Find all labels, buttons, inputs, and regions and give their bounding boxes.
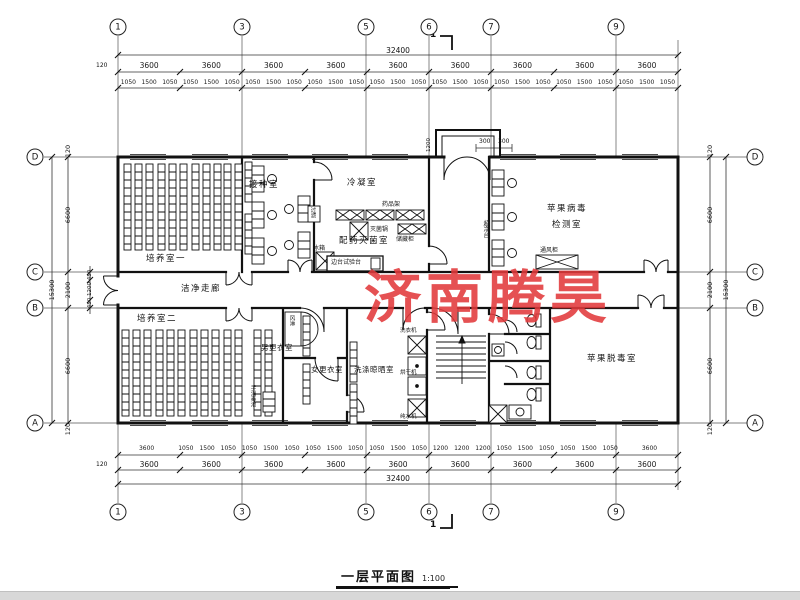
drawing-title-text: 一层平面图	[341, 566, 416, 585]
watermark-text: 济南腾昊	[364, 252, 612, 334]
grid-bubble-right-B: B	[747, 300, 764, 317]
grid-bubble-top-7: 7	[483, 19, 500, 36]
title-underline	[336, 586, 458, 588]
floor-plan-canvas: 济南腾昊 1 3 5 6 7 9 1 3 5 6 7 9 D C B A D C…	[0, 0, 800, 600]
dim-left-seg-6600b: 6600	[64, 348, 72, 384]
dim-right-seg-2100: 2100	[706, 272, 714, 308]
dim-right-total: 15300	[722, 272, 730, 308]
equip-label-hand-sink: 手消毒池	[249, 385, 255, 407]
equip-label-water-purifier: 纯水机	[400, 415, 417, 421]
dim-entrance-300a: 300	[479, 138, 490, 145]
dim-left-total: 15300	[48, 272, 56, 308]
room-label-virus-test-1: 苹果病毒	[547, 205, 587, 214]
equip-label-dryer: 烘干机	[400, 371, 417, 377]
room-label-prep-steril: 配药灭菌室	[339, 237, 389, 246]
bottom-gray-bar	[0, 591, 800, 600]
room-label-men-changing: 男更衣室	[261, 344, 293, 352]
grid-bubble-left-D: D	[27, 149, 44, 166]
equip-label-autoclave: 灭菌锅	[370, 227, 388, 233]
dim-left-seg-120b: 120	[64, 411, 72, 447]
equip-label-pass-box: 过滤	[309, 207, 315, 218]
grid-bubble-left-B: B	[27, 300, 44, 317]
room-label-virus-test-2: 检测室	[552, 221, 582, 230]
dim-entrance-300b: 300	[498, 138, 509, 145]
room-label-women-changing: 女更衣室	[311, 366, 343, 374]
grid-bubble-bottom-6: 6	[421, 504, 438, 521]
equip-label-reagent-rack: 药品架	[382, 202, 400, 208]
dim-top-sub: 1050150010501050150010501050150010501050…	[118, 80, 678, 86]
dim-left-seg-2100: 2100	[64, 272, 72, 308]
grid-bubble-right-C: C	[747, 264, 764, 281]
dim-left-seg-120t: 120	[64, 133, 72, 169]
equip-label-clean-bench: 超净台	[482, 220, 488, 238]
drawing-scale: 1:100	[422, 574, 445, 583]
room-label-inoculation: 接种室	[249, 181, 279, 190]
dim-right-seg-120t: 120	[706, 133, 714, 169]
grid-bubble-bottom-5: 5	[358, 504, 375, 521]
grid-bubble-top-6: 6	[421, 19, 438, 36]
dim-top-bays: 360036003600360036003600360036003600	[118, 62, 678, 70]
grid-bubble-left-A: A	[27, 415, 44, 432]
dim-right-seg-6600t: 6600	[706, 197, 714, 233]
grid-bubble-top-1: 1	[110, 19, 127, 36]
equip-label-fridge: 冰箱	[313, 246, 325, 252]
room-label-corridor: 洁净走廊	[181, 285, 221, 294]
dim-bottom-edge: 120	[96, 461, 107, 468]
dim-bottom-bays: 360036003600360036003600360036003600	[118, 461, 678, 469]
room-label-washing: 洗涤晾晒室	[354, 366, 394, 374]
room-label-detox: 苹果脱毒室	[587, 355, 637, 364]
dim-top-total: 32400	[118, 46, 678, 55]
grid-bubble-bottom-7: 7	[483, 504, 500, 521]
room-label-condensation: 冷凝室	[347, 179, 377, 188]
grid-bubble-bottom-1: 1	[110, 504, 127, 521]
grid-bubble-left-C: C	[27, 264, 44, 281]
equip-label-side-bench: 边台试验台	[331, 260, 361, 266]
dim-top-edge: 120	[96, 62, 107, 69]
dim-left-inner-450b: 450	[87, 285, 93, 321]
grid-bubble-top-3: 3	[234, 19, 251, 36]
grid-bubble-top-9: 9	[608, 19, 625, 36]
dim-right-seg-6600b: 6600	[706, 348, 714, 384]
equip-label-storage-cabinet: 储藏柜	[396, 237, 414, 243]
dim-bottom-sub: 3600105015001050105015001050105015001050…	[118, 446, 678, 452]
dim-bottom-total: 32400	[118, 474, 678, 483]
grid-bubble-bottom-9: 9	[608, 504, 625, 521]
grid-bubble-right-D: D	[747, 149, 764, 166]
dim-entrance-depth: 1200	[426, 127, 432, 163]
room-label-cultivation1: 培养室一	[146, 255, 186, 264]
room-label-cultivation2: 培养室二	[137, 315, 177, 324]
dim-left-seg-6600t: 6600	[64, 197, 72, 233]
grid-bubble-bottom-3: 3	[234, 504, 251, 521]
staircase	[436, 336, 486, 384]
grid-bubble-top-5: 5	[358, 19, 375, 36]
equip-label-air-shower: 风淋	[288, 315, 294, 326]
grid-bubble-right-A: A	[747, 415, 764, 432]
dim-right-seg-120b: 120	[706, 411, 714, 447]
section-mark-bottom: 1	[430, 520, 436, 530]
